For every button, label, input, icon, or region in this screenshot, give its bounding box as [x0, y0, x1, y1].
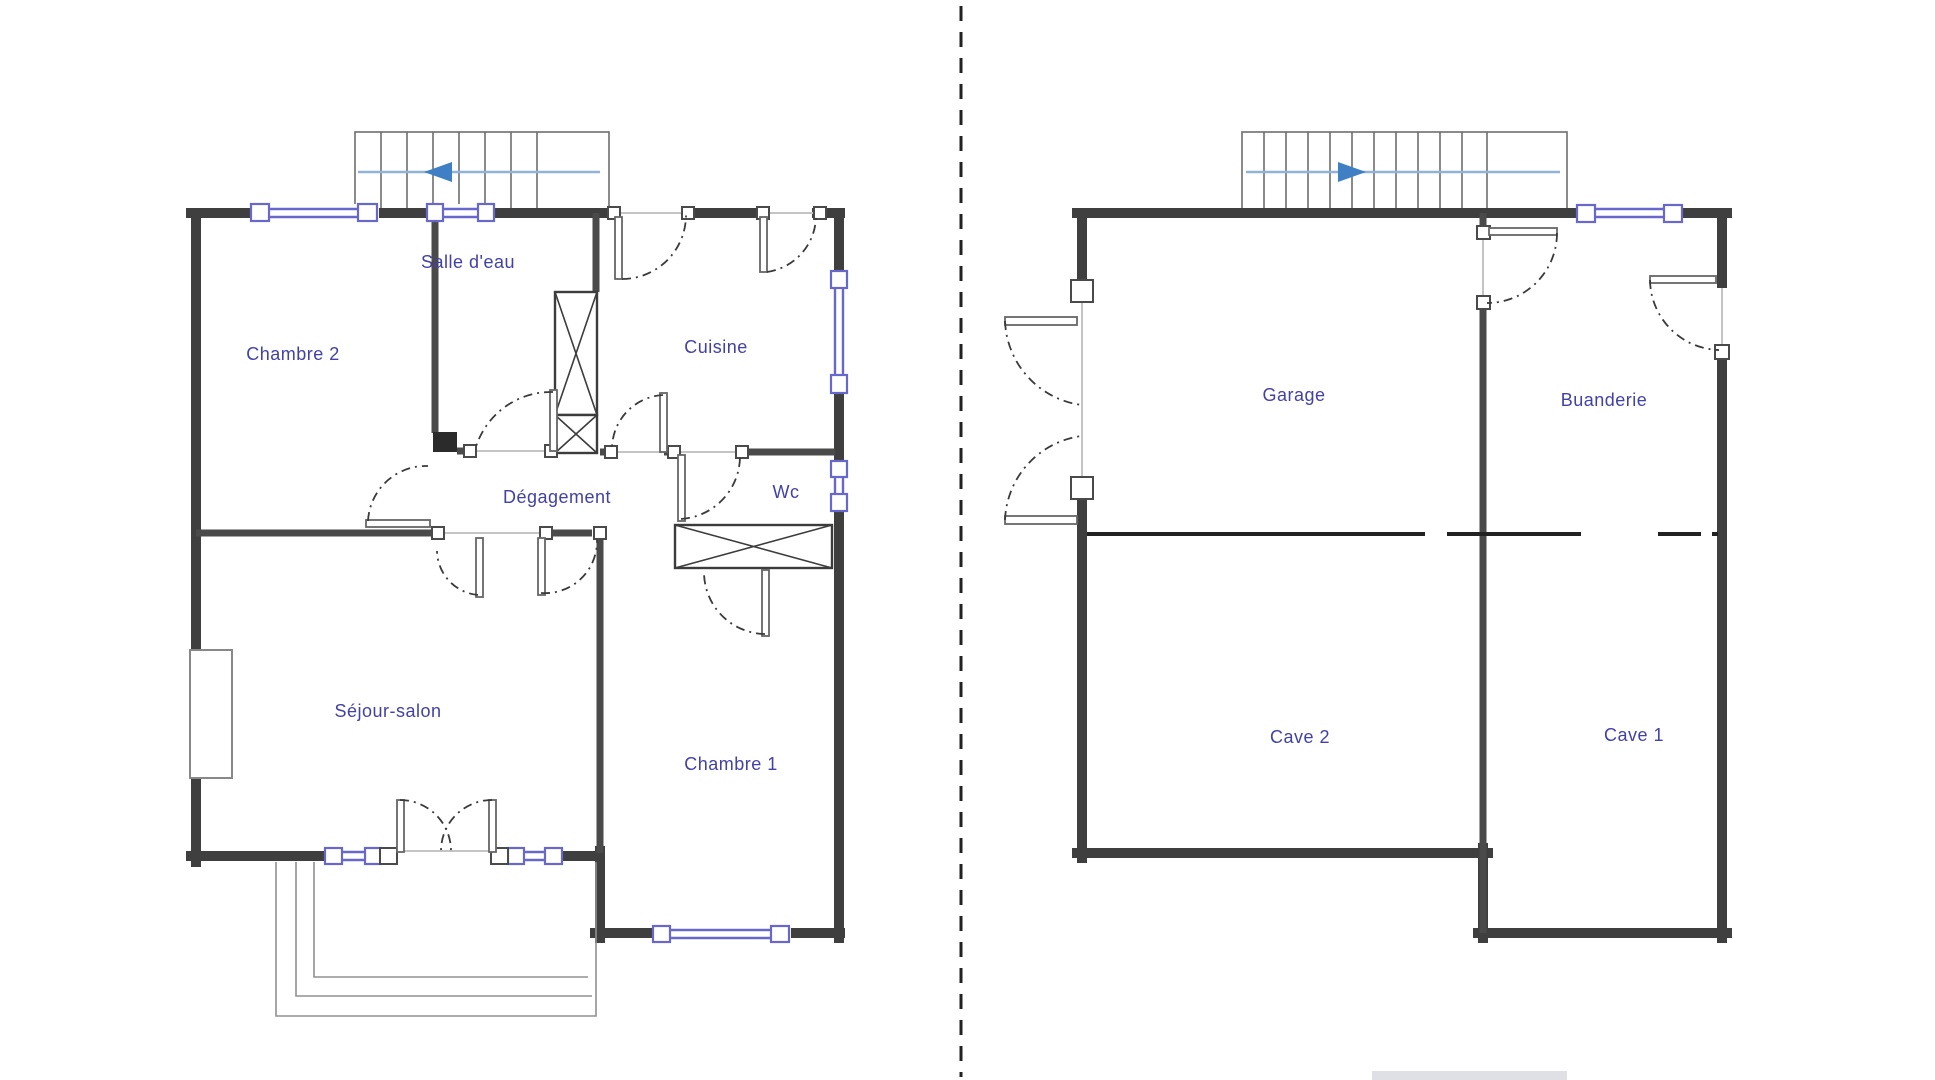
window-symbol — [250, 204, 379, 221]
upper-floor-stairs — [355, 132, 609, 212]
room-label-wc: Wc — [773, 482, 800, 502]
room-label-degagement: Dégagement — [503, 487, 611, 507]
basement-plan: Garage Buanderie Cave 2 Cave 1 — [1005, 132, 1729, 1080]
room-label-cave-1: Cave 1 — [1604, 725, 1664, 745]
window-symbol — [831, 271, 847, 394]
room-label-cuisine: Cuisine — [684, 337, 748, 357]
room-label-sejour-salon: Séjour-salon — [334, 701, 441, 721]
room-label-garage: Garage — [1262, 385, 1325, 405]
upper-floor-windows — [250, 204, 847, 942]
room-label-chambre-2: Chambre 2 — [246, 344, 340, 364]
terrace-steps — [276, 862, 596, 1016]
basement-doors — [1005, 228, 1719, 524]
floor-plan-drawing: Salle d'eau Chambre 2 Cuisine Dégagement… — [0, 0, 1935, 1080]
window-symbol — [831, 461, 847, 512]
basement-stairs — [1242, 132, 1567, 212]
duct-shaft — [555, 292, 597, 453]
room-label-buanderie: Buanderie — [1561, 390, 1648, 410]
window-symbol — [1576, 205, 1683, 222]
basement-thresholds — [1082, 240, 1722, 477]
basement-room-labels: Garage Buanderie Cave 2 Cave 1 — [1262, 385, 1664, 747]
room-label-salle-deau: Salle d'eau — [421, 252, 515, 272]
wc-fixture-box — [675, 525, 832, 568]
upper-floor-plan: Salle d'eau Chambre 2 Cuisine Dégagement… — [190, 132, 847, 1016]
window-symbol — [652, 925, 791, 942]
upper-floor-room-labels: Salle d'eau Chambre 2 Cuisine Dégagement… — [246, 252, 799, 774]
chimney-breast — [190, 650, 232, 778]
room-label-cave-2: Cave 2 — [1270, 727, 1330, 747]
basement-outer-walls — [1077, 213, 1727, 938]
window-symbol — [324, 848, 383, 864]
window-symbol — [426, 204, 495, 221]
upper-floor-outer-walls — [191, 213, 840, 938]
basement-door-posts — [1071, 226, 1729, 499]
cropped-bottom-artifact — [1372, 1071, 1567, 1080]
floor-plan-canvas: Salle d'eau Chambre 2 Cuisine Dégagement… — [0, 0, 1935, 1080]
window-symbol — [507, 848, 563, 864]
room-label-chambre-1: Chambre 1 — [684, 754, 778, 774]
wall-block — [433, 432, 457, 452]
